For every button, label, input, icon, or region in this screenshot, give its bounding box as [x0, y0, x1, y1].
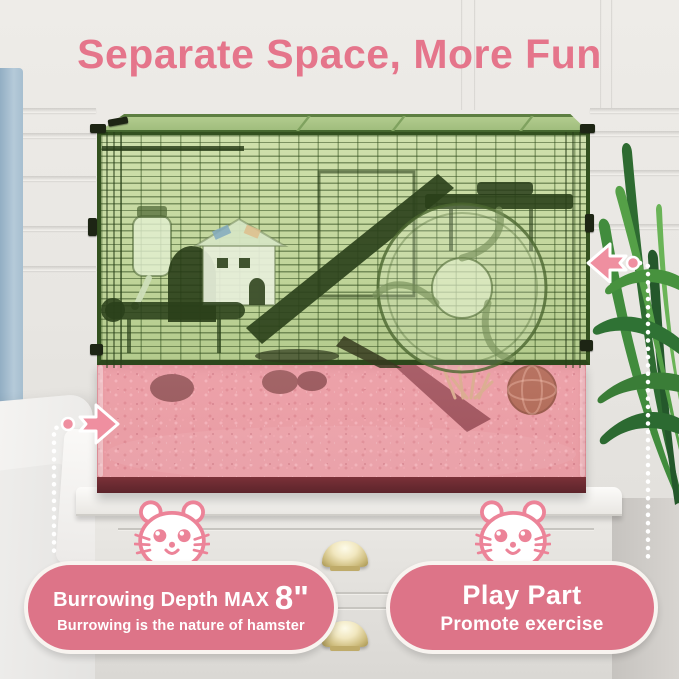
water-bottle: [131, 206, 171, 310]
page-title: Separate Space, More Fun: [0, 31, 679, 78]
frame-clip: [90, 344, 103, 355]
blue-curtain: [0, 68, 23, 436]
callout-burrowing-line1: Burrowing Depth MAX 8": [28, 581, 334, 616]
callout-play-line2: Promote exercise: [390, 614, 654, 636]
cage-accessories: [97, 132, 590, 368]
ramp-lower: [336, 336, 402, 368]
bedding-tray: [97, 362, 586, 493]
exercise-wheel: [375, 204, 546, 372]
frame-clip: [90, 124, 106, 133]
product-infographic: Burrowing Depth MAX 8" Burrowing is the …: [0, 0, 679, 679]
lid-ridge: [391, 116, 406, 131]
glass-highlight: [580, 365, 585, 477]
pink-tint-overlay: [97, 362, 586, 493]
tube-shelf: [101, 298, 245, 353]
frame-clip: [580, 124, 595, 133]
frame-clip: [88, 218, 97, 236]
potted-plant: [592, 100, 679, 505]
hamster-face-icon: [134, 497, 210, 569]
floor-debris: [255, 349, 339, 363]
hamster-face-icon: [475, 497, 551, 569]
lid-ridge: [296, 116, 311, 131]
cage-lid: [97, 114, 590, 133]
callout-burrowing-line2: Burrowing is the nature of hamster: [28, 618, 334, 634]
frame-clip: [580, 340, 593, 351]
callout-play-line1: Play Part: [390, 580, 654, 611]
lid-ridge: [519, 116, 534, 131]
hinge-bar: [102, 146, 244, 151]
frame-clip: [585, 214, 594, 232]
hamster-house: [195, 219, 285, 305]
callout-play-part: Play Part Promote exercise: [386, 561, 658, 654]
tray-base-bar: [97, 477, 586, 493]
glass-highlight: [98, 365, 103, 477]
callout-burrowing-depth: Burrowing Depth MAX 8" Burrowing is the …: [24, 561, 338, 654]
